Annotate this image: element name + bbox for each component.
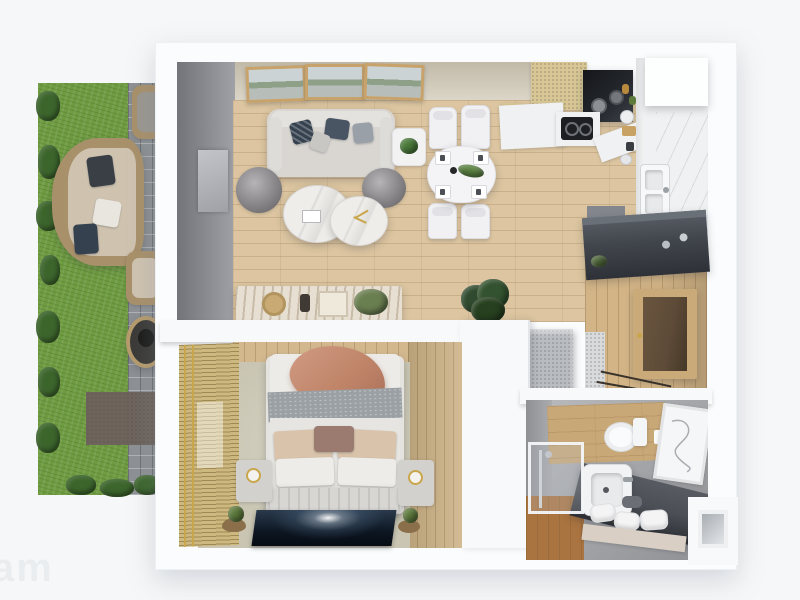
side-table (392, 128, 426, 166)
lamp (246, 468, 261, 483)
hall-bench (527, 329, 573, 393)
sideboard-vase (300, 294, 310, 312)
sideboard-greenery (354, 289, 388, 315)
outdoor-wicker-sofa (52, 138, 144, 266)
console-knob (662, 240, 671, 249)
pillow-charcoal (86, 154, 116, 187)
hedge (38, 367, 60, 397)
burner (565, 122, 579, 136)
sink-basin (645, 194, 663, 214)
entry-door (633, 289, 697, 379)
place-setting (435, 185, 451, 199)
large-potted-plant (461, 279, 511, 325)
counter-items (618, 82, 640, 166)
toilet (604, 416, 648, 454)
wall-art-frame-1 (245, 65, 306, 103)
wall-art-frame-2 (305, 64, 365, 100)
place-setting (473, 151, 489, 165)
blind-rail (192, 345, 194, 547)
pillow-navy (73, 223, 99, 255)
double-bed (266, 352, 404, 516)
hedge (36, 91, 60, 121)
coffee-table-twig (353, 216, 367, 224)
bottle-green (629, 96, 636, 105)
sideboard (236, 286, 402, 322)
blind-rail (184, 345, 186, 547)
door-leaf (643, 297, 687, 371)
sofa-pillow-gray (352, 122, 374, 144)
entry-console (582, 210, 710, 280)
towel-roll (639, 509, 668, 531)
plant-leaves (403, 508, 418, 523)
faucet (663, 187, 669, 193)
living-sofa (267, 109, 395, 177)
bowl (620, 154, 632, 165)
sink-drain (603, 487, 609, 493)
plate-stack (620, 110, 634, 124)
dining-chair (461, 204, 490, 239)
patio-mat (86, 392, 166, 445)
pillar-niche (698, 510, 728, 548)
dining-table (427, 146, 496, 203)
sink-faucet (623, 477, 633, 482)
dining-chair (429, 107, 457, 149)
towel-dark (622, 496, 642, 508)
place-setting (435, 151, 451, 165)
bedroom-plant-left (222, 506, 248, 534)
night-photo-rug (251, 510, 396, 546)
console-knob (679, 233, 688, 242)
fridge-column (645, 58, 708, 106)
fire-pit-bowl (138, 329, 154, 347)
nightstand-left (236, 460, 272, 502)
shower-bar (539, 450, 542, 508)
watermark-text: am (0, 546, 54, 591)
tv-panel (198, 150, 228, 212)
sideboard-basket (262, 292, 286, 316)
bathroom (526, 400, 708, 560)
hedge (36, 423, 60, 453)
burner (579, 123, 592, 136)
gas-stove (561, 117, 593, 140)
lamp (408, 470, 423, 485)
sink-basin (645, 170, 663, 190)
console-plant (591, 255, 608, 268)
nightstand-right (398, 460, 434, 506)
wall-living-bedroom (160, 320, 460, 342)
sideboard-frame (318, 291, 348, 317)
hedge (100, 479, 134, 497)
wardrobe-partition (460, 320, 530, 548)
sofa-arm-left (269, 117, 282, 171)
shower-enclosure (528, 442, 584, 514)
bottle-amber (622, 84, 629, 94)
door-handle (637, 333, 642, 338)
coffee-table-book (302, 210, 321, 223)
pepper-mill (450, 167, 457, 174)
corner-pillar (688, 497, 738, 565)
plant-leaves (228, 506, 244, 522)
hedge (66, 475, 96, 495)
pouf-left (236, 167, 282, 213)
pillow-white (276, 457, 335, 487)
dining-chair (461, 105, 490, 149)
hedge (40, 255, 60, 285)
dining-chair (428, 203, 457, 239)
wall-art-frame-3 (363, 63, 424, 101)
toilet-tank (633, 418, 647, 446)
window-glow (197, 402, 223, 469)
pillow-white (338, 457, 397, 487)
shower-head (545, 451, 552, 458)
place-setting (471, 185, 487, 199)
floor-plan-render: am (0, 0, 800, 600)
bedroom-plant-right (396, 508, 422, 536)
cutting-board (622, 126, 636, 136)
bath-wall-art (653, 403, 708, 485)
dark-jar (626, 142, 634, 151)
side-table-plant (400, 138, 418, 154)
hedge (36, 311, 60, 343)
pillow-accent (314, 426, 354, 452)
coffee-table-small (330, 196, 388, 246)
line-art (656, 406, 708, 481)
pillow-white (92, 198, 122, 228)
garden-terrace (38, 83, 166, 495)
